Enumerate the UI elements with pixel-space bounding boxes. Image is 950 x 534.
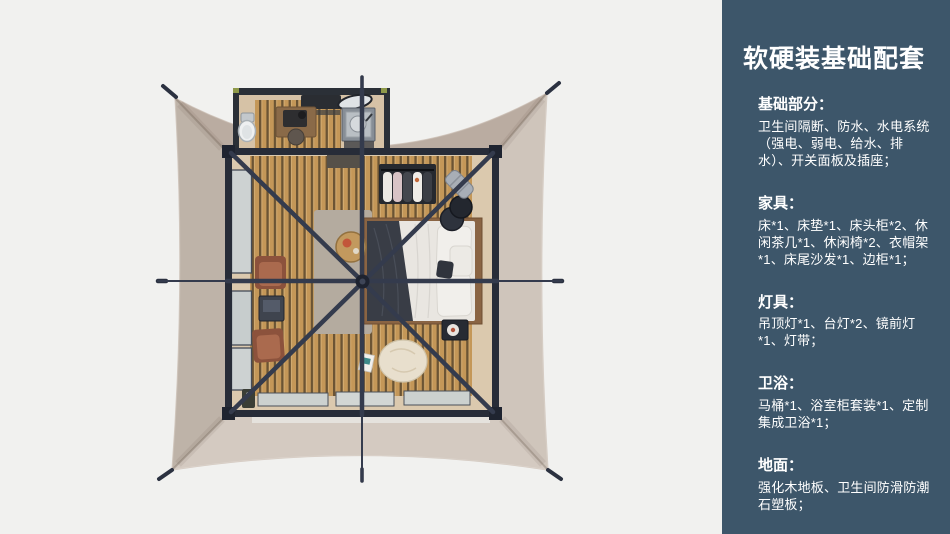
- pillows: [436, 225, 472, 316]
- section-heading: 灯具：: [758, 294, 930, 313]
- section-body: 马桶*1、浴室柜套装*1、定制集成卫浴*1；: [758, 397, 930, 431]
- pole-tip-left: [233, 88, 239, 93]
- center-hub: [356, 275, 370, 289]
- pole-tip-right: [381, 88, 387, 93]
- clothes-rack: [379, 164, 436, 204]
- floorplan-render: [0, 0, 722, 534]
- section-bathroom: 卫浴： 马桶*1、浴室柜套装*1、定制集成卫浴*1；: [758, 375, 930, 431]
- slide: 软硬装基础配套 基础部分： 卫生间隔断、防水、水电系统（强电、弱电、给水、排水）…: [0, 0, 950, 534]
- section-body: 吊顶灯*1、台灯*2、镜前灯*1、灯带；: [758, 315, 930, 349]
- section-heading: 基础部分：: [758, 96, 930, 115]
- door-sill: [252, 417, 490, 423]
- side-table: [259, 296, 284, 321]
- section-basics: 基础部分： 卫生间隔断、防水、水电系统（强电、弱电、给水、排水）、开关面板及插座…: [758, 96, 930, 169]
- section-body: 强化木地板、卫生间防滑防潮石塑板；: [758, 479, 930, 513]
- square-nightstand: [442, 320, 468, 340]
- section-heading: 家具：: [758, 195, 930, 214]
- section-furniture: 家具： 床*1、床垫*1、床头柜*2、休闲茶几*1、休闲椅*2、衣帽架*1、床尾…: [758, 195, 930, 268]
- section-heading: 地面：: [758, 457, 930, 476]
- section-body: 床*1、床垫*1、床头柜*2、休闲茶几*1、休闲椅*2、衣帽架*1、床尾沙发*1…: [758, 217, 930, 268]
- panel-title: 软硬装基础配套: [743, 44, 930, 74]
- section-flooring: 地面： 强化木地板、卫生间防滑防潮石塑板；: [758, 457, 930, 513]
- bed: [364, 218, 482, 324]
- spec-panel: 软硬装基础配套 基础部分： 卫生间隔断、防水、水电系统（强电、弱电、给水、排水）…: [722, 0, 950, 534]
- desk-chair: [288, 129, 304, 145]
- bathroom-sink: [342, 108, 375, 148]
- toilet: [239, 113, 256, 142]
- section-body: 卫生间隔断、防水、水电系统（强电、弱电、给水、排水）、开关面板及插座；: [758, 118, 930, 169]
- floorplan-svg: [0, 0, 722, 534]
- section-lighting: 灯具： 吊顶灯*1、台灯*2、镜前灯*1、灯带；: [758, 294, 930, 350]
- bean-bag: [379, 340, 427, 382]
- bathroom-annex: [233, 88, 390, 152]
- lounge-chair-2: [252, 328, 285, 363]
- section-heading: 卫浴：: [758, 375, 930, 394]
- lounge-chair-1: [255, 256, 286, 289]
